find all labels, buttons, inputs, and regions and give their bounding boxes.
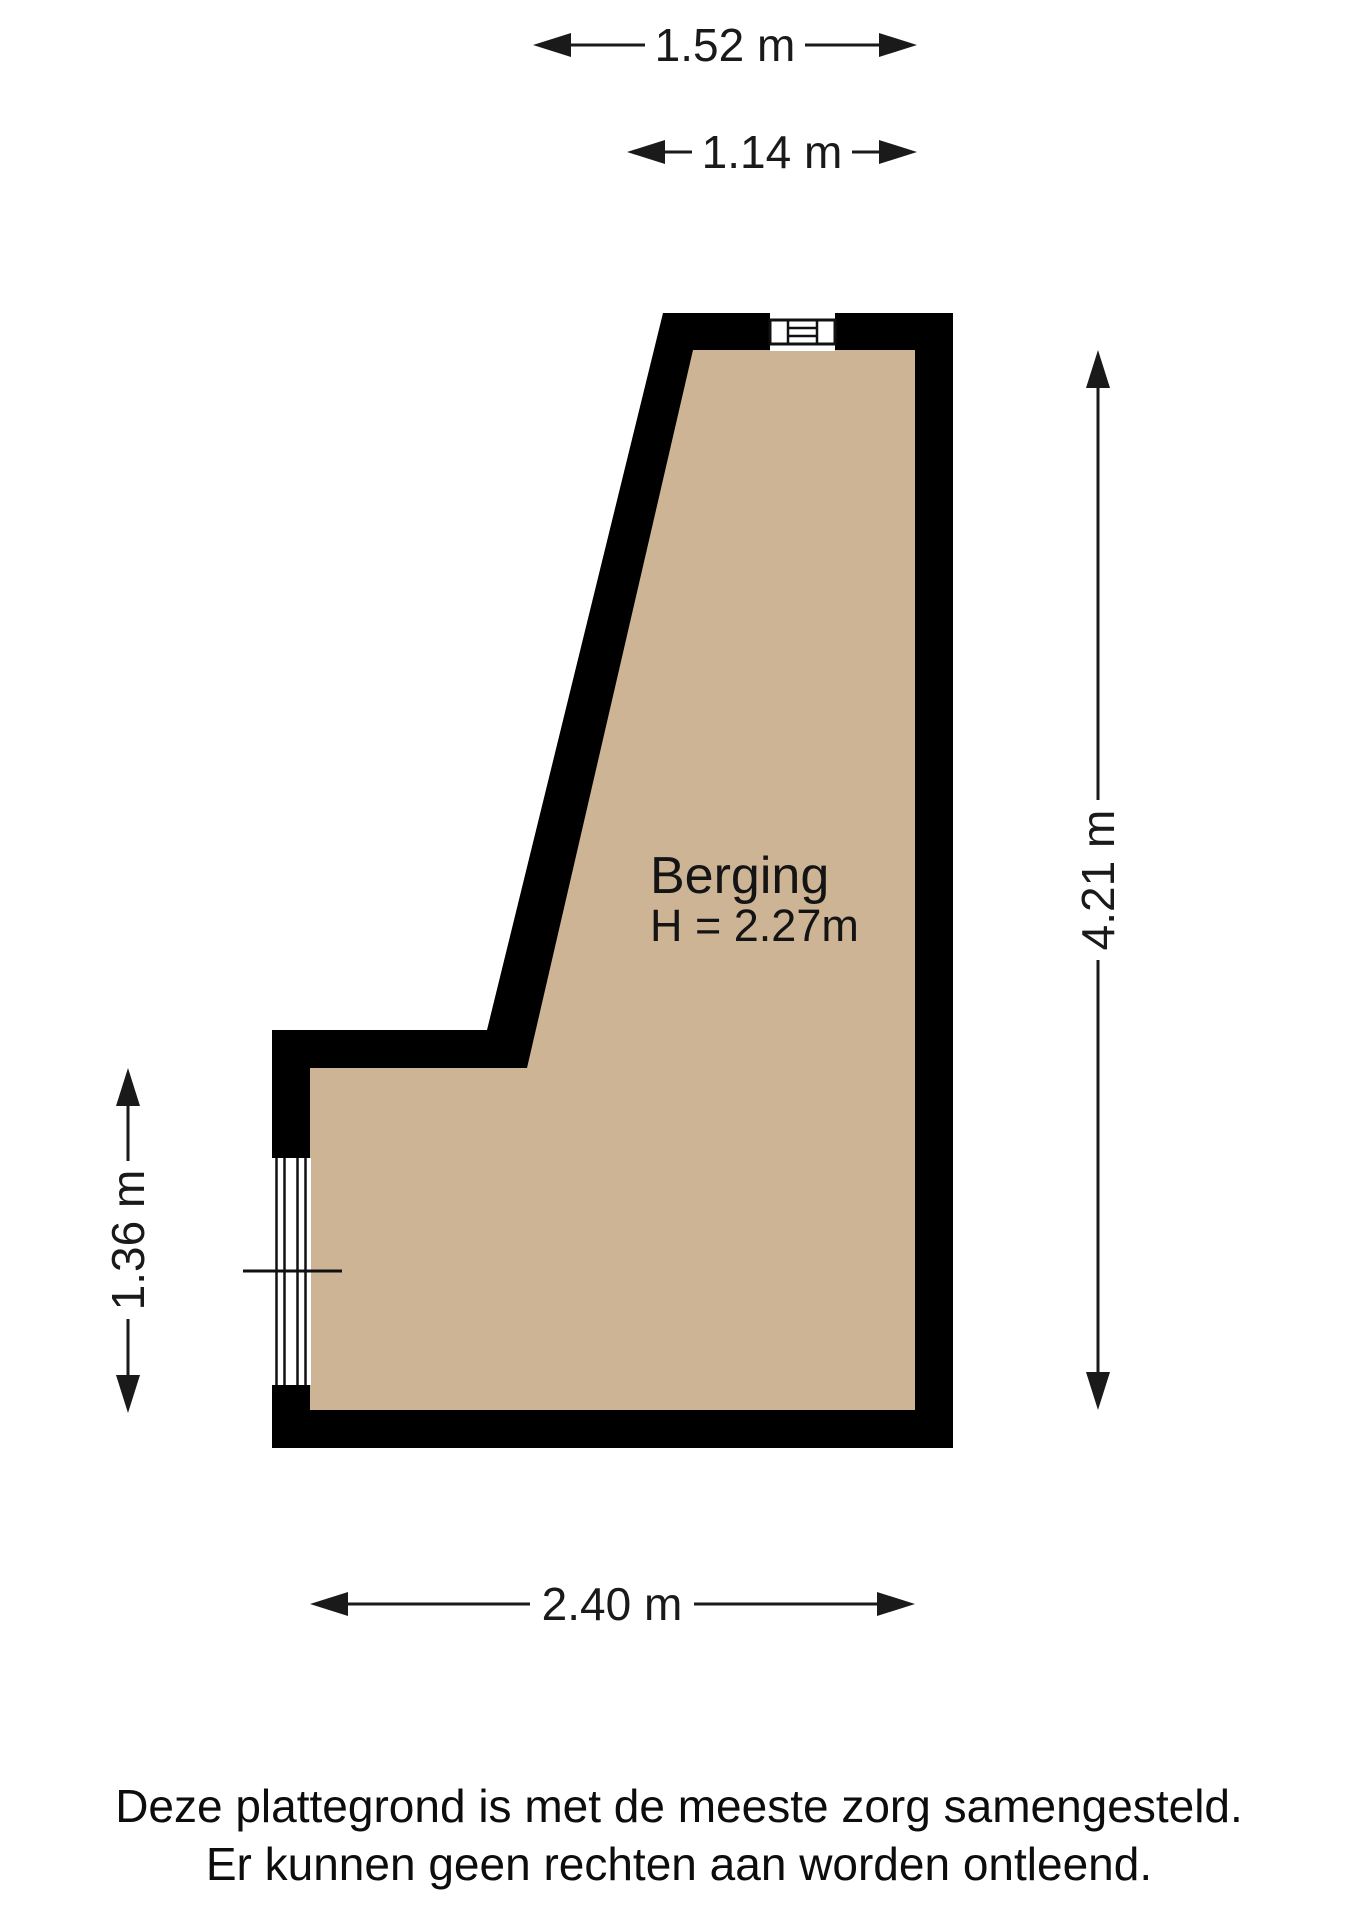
dimension-label-left-side: 1.36 m bbox=[102, 1170, 154, 1311]
arrow-right-icon bbox=[879, 33, 917, 57]
arrow-right-icon bbox=[877, 1592, 915, 1616]
room-name: Berging bbox=[650, 847, 829, 905]
dimension-bottom: 2.40 m bbox=[310, 1578, 915, 1630]
arrow-up-icon bbox=[116, 1068, 140, 1106]
footer-line-2: Er kunnen geen rechten aan worden ontlee… bbox=[206, 1838, 1152, 1890]
dimension-top-inner: 1.14 m bbox=[627, 126, 917, 178]
dimension-label-bottom: 2.40 m bbox=[542, 1578, 683, 1630]
arrow-up-icon bbox=[1086, 350, 1110, 388]
dimension-left-side: 1.36 m bbox=[102, 1068, 154, 1413]
dimension-label-top-inner: 1.14 m bbox=[702, 126, 843, 178]
dimension-top-outer: 1.52 m bbox=[533, 19, 917, 71]
floorplan-page: 1.52 m 1.14 m 4.21 m 1.36 m bbox=[0, 0, 1358, 1920]
arrow-right-icon bbox=[879, 140, 917, 164]
arrow-left-icon bbox=[310, 1592, 348, 1616]
dimension-right-side: 4.21 m bbox=[1072, 350, 1124, 1410]
floorplan-canvas: 1.52 m 1.14 m 4.21 m 1.36 m bbox=[0, 0, 1358, 1920]
room-label: Berging H = 2.27m bbox=[650, 847, 859, 951]
top-window-frame bbox=[770, 320, 835, 344]
footer-line-1: Deze plattegrond is met de meeste zorg s… bbox=[115, 1780, 1243, 1832]
arrow-down-icon bbox=[1086, 1372, 1110, 1410]
footer-disclaimer: Deze plattegrond is met de meeste zorg s… bbox=[115, 1780, 1243, 1890]
dimension-label-right-side: 4.21 m bbox=[1072, 810, 1124, 951]
arrow-down-icon bbox=[116, 1375, 140, 1413]
arrow-left-icon bbox=[533, 33, 571, 57]
dimension-label-top-outer: 1.52 m bbox=[655, 19, 796, 71]
arrow-left-icon bbox=[627, 140, 665, 164]
top-window bbox=[770, 312, 835, 351]
room-ceiling-height: H = 2.27m bbox=[650, 900, 859, 951]
